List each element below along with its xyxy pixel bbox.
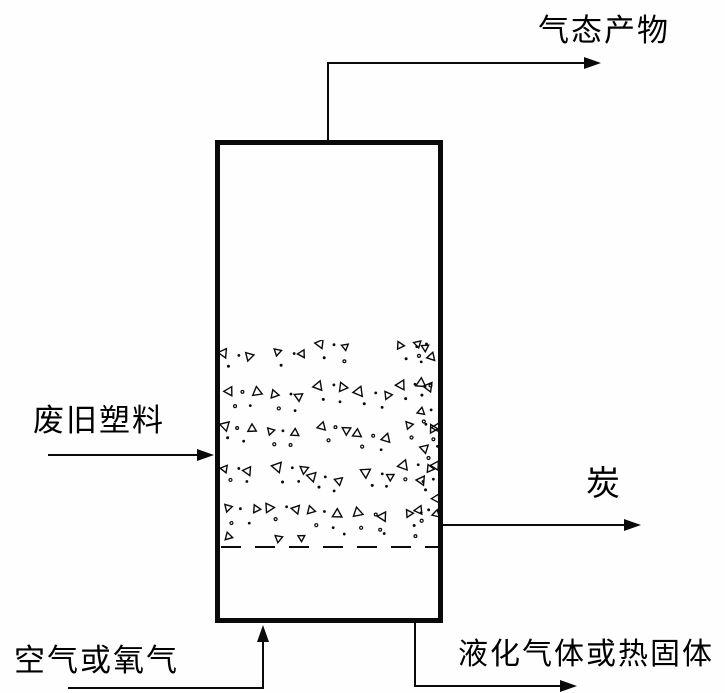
bottom-inlet-line-horizontal — [68, 687, 264, 689]
arrowhead-right-icon — [560, 680, 577, 692]
right-outlet-arrow-line — [443, 524, 625, 526]
arrowhead-right-icon — [584, 57, 601, 69]
top-outlet-label: 气态产物 — [538, 14, 670, 48]
top-outlet-pipe — [327, 63, 329, 140]
bottom-outlet-label: 液化气体或热固体 — [458, 638, 714, 671]
bottom-outlet-line-horizontal — [414, 685, 562, 687]
left-inlet-arrow-line — [48, 454, 198, 456]
particle-bed-pattern — [220, 340, 439, 547]
diagram-canvas: 气态产物 废旧塑料 炭 空气或氧气 液化气体或热固体 — [0, 0, 725, 693]
bed-surface-dashed-line — [221, 546, 439, 548]
bottom-inlet-line-vertical — [262, 641, 264, 688]
arrowhead-up-icon — [257, 625, 269, 642]
top-outlet-arrow-line — [327, 62, 585, 64]
bottom-outlet-line-vertical — [414, 623, 416, 687]
arrowhead-right-icon — [624, 519, 641, 531]
bottom-inlet-label: 空气或氧气 — [14, 644, 179, 678]
right-outlet-label: 炭 — [586, 466, 622, 503]
arrowhead-right-icon — [197, 449, 214, 461]
left-inlet-label: 废旧塑料 — [33, 404, 165, 438]
